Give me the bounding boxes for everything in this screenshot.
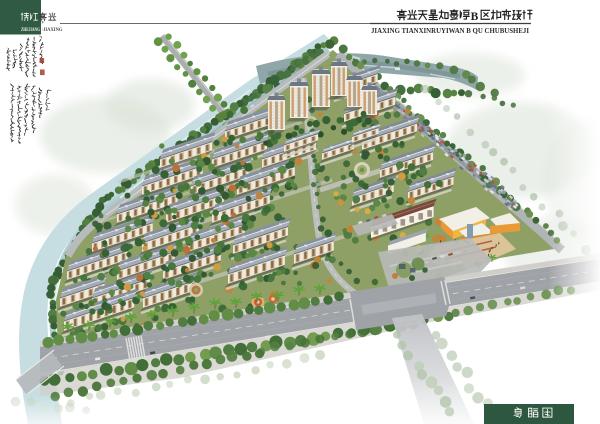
svg-text:B: B	[471, 11, 479, 23]
svg-text:·JIAXING: ·JIAXING	[42, 27, 64, 33]
svg-text:JIAXING TIANXINRUYIWAN B QU CH: JIAXING TIANXINRUYIWAN B QU CHUBUSHEJI	[371, 26, 529, 35]
svg-text:ZHEJIANG: ZHEJIANG	[21, 27, 40, 33]
